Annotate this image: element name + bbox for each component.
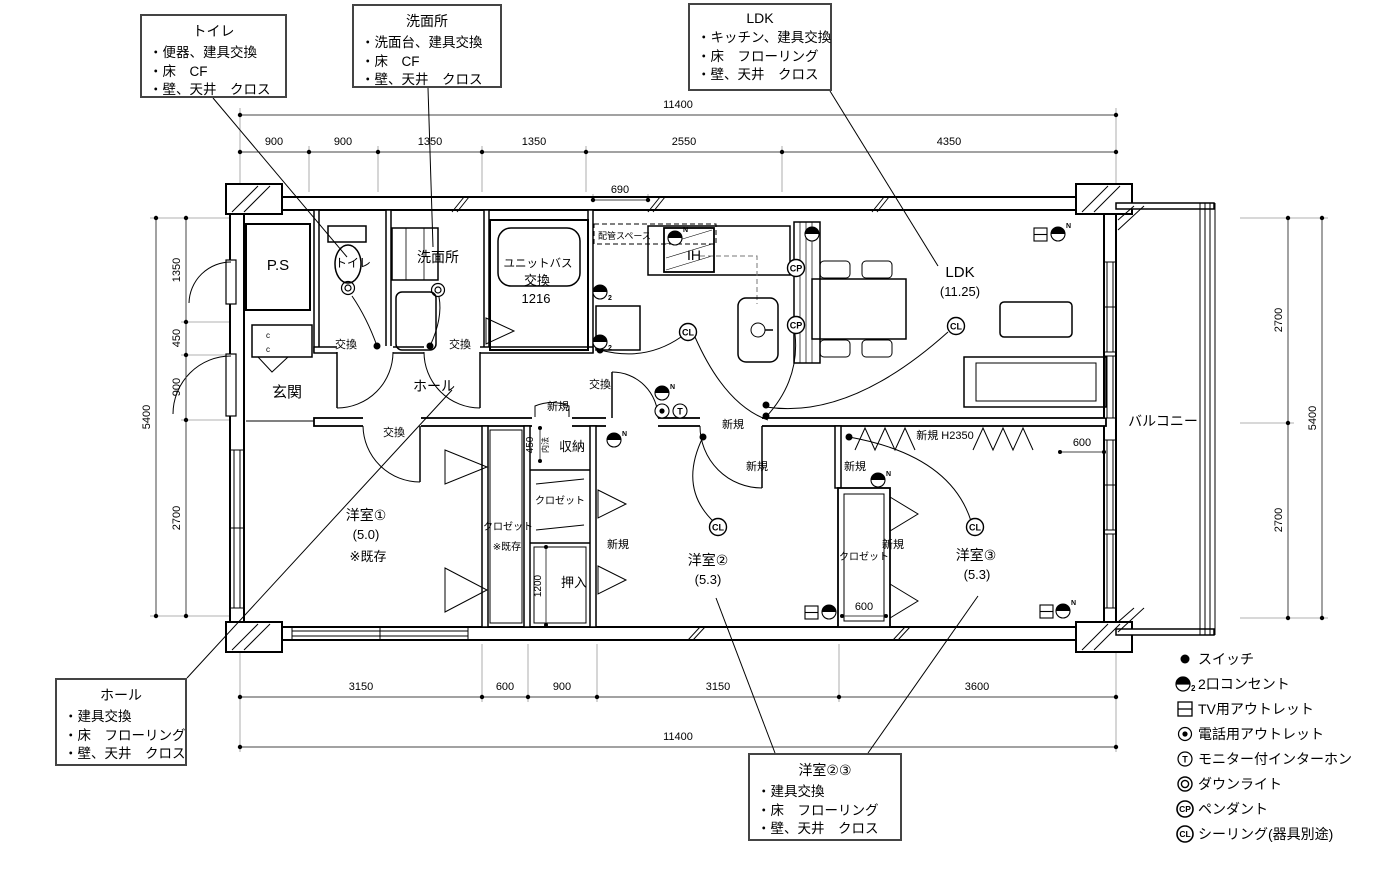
svg-text:CP: CP	[790, 264, 803, 274]
room-label-unitbath-size: 1216	[522, 291, 551, 306]
svg-text:CL: CL	[1179, 829, 1190, 839]
room-label-toilet: トイレ	[335, 256, 371, 270]
callout-hall-title: ホール	[64, 685, 178, 705]
legend-item-tv-outlet: TV用アウトレット	[1172, 696, 1390, 721]
svg-text:N: N	[1071, 600, 1076, 607]
svg-text:c: c	[266, 331, 270, 340]
svg-text:4350: 4350	[937, 136, 961, 148]
doors	[173, 260, 762, 488]
svg-text:450: 450	[525, 436, 536, 453]
legend: スイッチ 2 2口コンセント TV用アウトレット 電話用アウトレット T モニタ…	[1172, 646, 1390, 846]
callout-rooms23: 洋室②③ ・建具交換 ・床 フローリング ・壁、天井 クロス	[748, 753, 902, 841]
svg-text:N: N	[670, 384, 675, 391]
svg-text:T: T	[677, 407, 683, 417]
svg-text:5400: 5400	[141, 405, 153, 429]
callout-washroom: 洗面所 ・洗面台、建具交換 ・床 CF ・壁、天井 クロス	[352, 4, 502, 88]
pendant-icon: CP	[1172, 799, 1198, 819]
callout-ldk-title: LDK	[697, 10, 823, 26]
svg-text:11400: 11400	[663, 731, 693, 743]
room-label-pipespace: 配管スペース	[598, 230, 651, 241]
room-label-unitbath-kokan: 交換	[524, 273, 550, 288]
legend-item-interphone: T モニター付インターホン	[1172, 746, 1390, 771]
svg-text:2700: 2700	[1273, 308, 1285, 332]
room-label-washroom: 洗面所	[417, 249, 459, 265]
svg-text:交換: 交換	[335, 337, 357, 351]
svg-text:N: N	[1066, 223, 1071, 230]
svg-text:T: T	[1182, 754, 1188, 764]
svg-text:新規: 新規	[844, 459, 866, 473]
downlight-icon	[342, 282, 445, 297]
svg-text:CL: CL	[682, 328, 694, 338]
svg-text:600: 600	[855, 601, 873, 613]
svg-text:新規: 新規	[547, 399, 569, 413]
room-label-unitbath: ユニットバス	[504, 257, 573, 270]
svg-text:11400: 11400	[663, 99, 693, 111]
room-label-r2-size: (5.3)	[695, 572, 722, 587]
svg-text:3150: 3150	[349, 681, 373, 693]
svg-text:新規: 新規	[746, 459, 768, 473]
svg-text:900: 900	[171, 378, 183, 396]
room-label-genkan: 玄関	[272, 384, 302, 401]
ceiling-icon: CL	[1172, 824, 1198, 844]
room-label-hall: ホール	[413, 378, 455, 394]
room-label-closet1-note: ※既存	[493, 540, 521, 553]
legend-item-pendant: CP ペンダント	[1172, 796, 1390, 821]
callout-rooms23-title: 洋室②③	[757, 760, 893, 780]
room-label-ps: P.S	[267, 257, 289, 274]
phone-outlet-icon	[1172, 724, 1198, 744]
legend-item-phone-outlet: 電話用アウトレット	[1172, 721, 1390, 746]
svg-text:690: 690	[611, 184, 629, 196]
svg-text:1200: 1200	[533, 574, 544, 597]
svg-text:交換: 交換	[449, 337, 471, 351]
legend-item-downlight: ダウンライト	[1172, 771, 1390, 796]
cabinet-marks: c c	[266, 331, 270, 354]
room-label-r1-size: (5.0)	[353, 527, 380, 542]
phone-outlet-icon	[655, 404, 669, 418]
svg-text:600: 600	[496, 681, 514, 693]
svg-text:2700: 2700	[171, 506, 183, 530]
svg-text:新規: 新規	[722, 417, 744, 431]
outlet2-icon: 2	[1172, 674, 1198, 694]
svg-text:N: N	[622, 431, 627, 438]
room-label-r1: 洋室①	[346, 507, 387, 523]
svg-text:新規: 新規	[607, 537, 629, 551]
callout-ldk: LDK ・キッチン、建具交換 ・床 フローリング ・壁、天井 クロス	[688, 3, 832, 91]
callout-toilet-title: トイレ	[149, 21, 278, 41]
room-label-oshiire: 押入	[561, 575, 587, 590]
room-label-closet3: クロゼット	[839, 551, 889, 563]
switch-icon	[1172, 649, 1198, 669]
svg-text:新規: 新規	[882, 537, 904, 551]
room-label-r3-size: (5.3)	[964, 567, 991, 582]
svg-text:900: 900	[553, 681, 571, 693]
callout-toilet: トイレ ・便器、建具交換 ・床 CF ・壁、天井 クロス	[140, 14, 287, 98]
room-label-ldk: LDK	[945, 264, 974, 281]
svg-text:交換: 交換	[589, 377, 611, 391]
svg-text:CL: CL	[969, 523, 981, 533]
plan-text-labels: P.S 玄関 トイレ 洗面所 ユニットバス 交換 1216 配管スペース IH …	[266, 230, 1198, 590]
interphone-icon: T	[1172, 749, 1198, 769]
svg-text:900: 900	[265, 136, 283, 148]
svg-text:N: N	[886, 471, 891, 478]
svg-text:900: 900	[334, 136, 352, 148]
callout-hall: ホール ・建具交換 ・床 フローリング ・壁、天井 クロス	[55, 678, 187, 766]
svg-text:N: N	[683, 227, 688, 234]
svg-text:CP: CP	[1179, 804, 1191, 814]
room-label-balcony: バルコニー	[1128, 413, 1198, 429]
room-label-closet1: クロゼット	[483, 521, 533, 533]
svg-text:内法: 内法	[540, 437, 550, 453]
room-label-r3: 洋室③	[956, 547, 997, 563]
room-label-shuno: 収納	[559, 439, 585, 454]
callout-washroom-title: 洗面所	[361, 11, 493, 31]
room-label-r1-note: ※既存	[350, 549, 387, 564]
svg-text:CP: CP	[790, 321, 803, 331]
svg-text:CL: CL	[950, 322, 962, 332]
svg-text:交換: 交換	[383, 425, 405, 439]
windows	[230, 262, 1116, 640]
svg-text:1350: 1350	[171, 258, 183, 282]
room-label-ih: IH	[687, 247, 701, 263]
svg-text:1350: 1350	[522, 136, 546, 148]
svg-text:3600: 3600	[965, 681, 989, 693]
legend-item-switch: スイッチ	[1172, 646, 1390, 671]
svg-text:新規 H2350: 新規 H2350	[916, 428, 973, 442]
downlight-icon	[1172, 774, 1198, 794]
legend-item-ceiling: CL シーリング(器具別途)	[1172, 821, 1390, 846]
svg-text:600: 600	[1073, 437, 1091, 449]
room-label-closet2: クロゼット	[535, 495, 585, 507]
legend-item-outlet2: 2 2口コンセント	[1172, 671, 1390, 696]
room-label-r2: 洋室②	[688, 552, 729, 568]
svg-text:c: c	[266, 345, 270, 354]
svg-text:2: 2	[1191, 684, 1196, 693]
svg-text:2: 2	[608, 345, 612, 352]
interphone-icon: T	[673, 404, 687, 418]
svg-text:450: 450	[171, 329, 183, 347]
svg-text:2: 2	[608, 295, 612, 302]
svg-text:2700: 2700	[1273, 508, 1285, 532]
svg-text:3150: 3150	[706, 681, 730, 693]
room-label-ldk-size: (11.25)	[940, 284, 980, 299]
svg-text:5400: 5400	[1307, 406, 1319, 430]
tv-outlet-icon	[1172, 699, 1198, 719]
svg-text:CL: CL	[712, 523, 724, 533]
pendant-icon: CP CP	[788, 260, 805, 334]
svg-text:2550: 2550	[672, 136, 696, 148]
